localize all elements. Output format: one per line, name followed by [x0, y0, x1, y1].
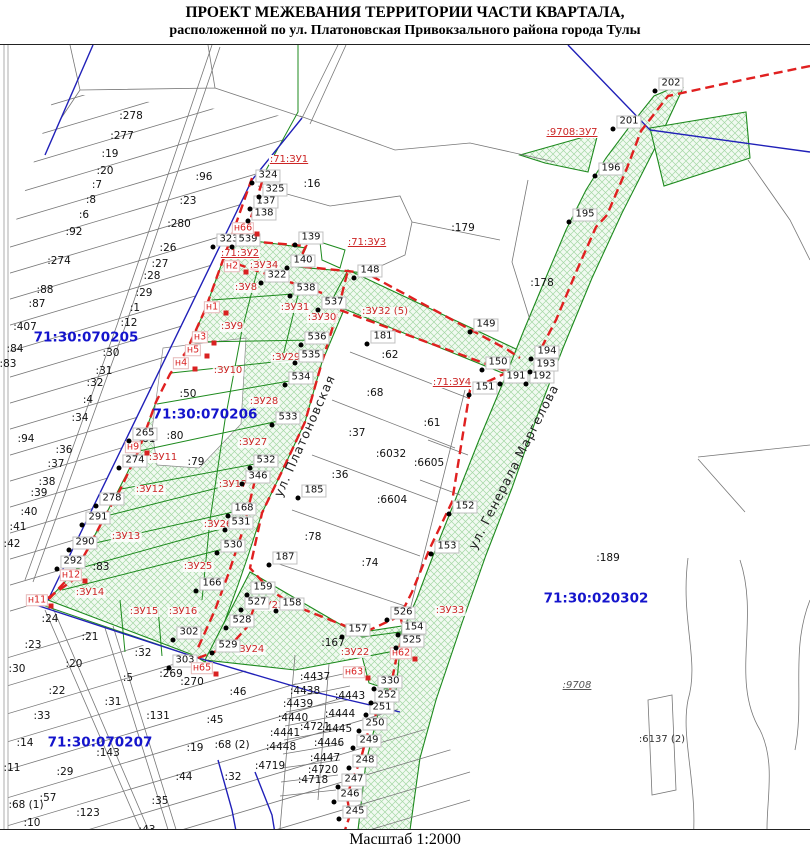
- boundary-point-dot: [127, 439, 132, 444]
- boundary-point-dot: [288, 294, 293, 299]
- new-point-dot: [413, 657, 418, 662]
- parcel-number-label: :41: [10, 522, 27, 533]
- boundary-point-dot: [211, 245, 216, 250]
- parcel-number-label: :14: [17, 738, 34, 749]
- parcel-number-label: :61: [424, 418, 441, 429]
- parcel-number-label: :7: [92, 180, 102, 191]
- parcel-number-label: :39: [31, 488, 48, 499]
- boundary-point-dot: [285, 266, 290, 271]
- zu-parcel-label: :ЗУ22: [340, 648, 371, 658]
- street-name-label: ул. Генерала Маргелова: [467, 383, 561, 552]
- boundary-point-label: 245: [342, 806, 367, 819]
- boundary-point-label: 153: [434, 541, 459, 554]
- parcel-number-label: :189: [596, 553, 620, 564]
- boundary-point-dot: [246, 219, 251, 224]
- boundary-point-label: 140: [290, 255, 315, 268]
- boundary-point-dot: [337, 817, 342, 822]
- parcel-number-label: :24: [42, 614, 59, 625]
- parcel-number-label: :26: [160, 243, 177, 254]
- parcel-number-label: :94: [18, 434, 35, 445]
- parcel-number-label: :30: [103, 348, 120, 359]
- cadastral-plan-page: :278:277:19:20:7:8:6:92:274:88:87:407:84…: [0, 0, 810, 852]
- parcel-number-label: :4437: [300, 672, 330, 683]
- boundary-point-dot: [248, 466, 253, 471]
- zu-parcel-label: :ЗУ11: [148, 453, 179, 463]
- boundary-point-dot: [94, 504, 99, 509]
- parcel-number-label: :80: [167, 431, 184, 442]
- parcel-number-label: :23: [25, 640, 42, 651]
- boundary-point-dot: [447, 512, 452, 517]
- parcel-number-label: :278: [119, 111, 143, 122]
- new-point-label: н11: [26, 594, 48, 606]
- parcel-number-label: :40: [21, 507, 38, 518]
- boundary-point-label: 249: [356, 735, 381, 748]
- parcel-number-label: :74: [362, 558, 379, 569]
- parcel-number-label: :68 (1): [8, 800, 43, 811]
- parcel-number-label: :29: [57, 767, 74, 778]
- parcel-number-label: :38: [39, 477, 56, 488]
- new-point-dot: [193, 367, 198, 372]
- boundary-point-dot: [215, 551, 220, 556]
- boundary-point-dot: [230, 245, 235, 250]
- parcel-number-label: :32: [87, 378, 104, 389]
- boundary-point-label: 534: [288, 372, 313, 385]
- parcel-number-label: :4446: [314, 738, 344, 749]
- boundary-point-dot: [498, 382, 503, 387]
- parcel-number-label: :16: [304, 179, 321, 190]
- parcel-number-label: :96: [196, 172, 213, 183]
- boundary-point-dot: [274, 609, 279, 614]
- zu-parcel-label: :ЗУ12: [135, 485, 166, 495]
- new-point-label: н2: [224, 260, 240, 272]
- parcel-number-label: :179: [451, 223, 475, 234]
- parcel-number-label: :4444: [325, 709, 355, 720]
- boundary-point-dot: [210, 651, 215, 656]
- parcel-number-label: :6604: [377, 495, 407, 506]
- boundary-point-dot: [67, 548, 72, 553]
- zu-parcel-label: :ЗУ10: [213, 366, 244, 376]
- parcel-number-label: :19: [102, 149, 119, 160]
- boundary-point-dot: [480, 368, 485, 373]
- quarter-number-label: 71:30:070206: [153, 408, 258, 422]
- new-point-label: н3: [192, 331, 208, 343]
- zu-parcel-label: :ЗУ9: [220, 322, 244, 332]
- parcel-number-label: :8: [86, 195, 96, 206]
- boundary-point-label: 150: [485, 357, 510, 370]
- boundary-point-label: 154: [401, 622, 426, 635]
- zu-parcel-label: :9708:ЗУ7: [545, 128, 598, 138]
- boundary-point-label: 532: [253, 455, 278, 468]
- parcel-number-label: :36: [332, 470, 349, 481]
- boundary-point-dot: [270, 423, 275, 428]
- parcel-number-label: :277: [110, 131, 134, 142]
- boundary-point-label: 152: [452, 501, 477, 514]
- parcel-number-label: :78: [305, 532, 322, 543]
- new-point-label: н1: [204, 301, 220, 313]
- boundary-point-dot: [299, 343, 304, 348]
- boundary-point-dot: [611, 127, 616, 132]
- boundary-point-label: 247: [341, 774, 366, 787]
- boundary-point-dot: [239, 608, 244, 613]
- parcel-number-label: :4447: [310, 753, 340, 764]
- boundary-point-label: 248: [352, 755, 377, 768]
- parcel-number-label: :46: [230, 687, 247, 698]
- parcel-number-label: :62: [382, 350, 399, 361]
- new-point-dot: [214, 672, 219, 677]
- quarter-number-label: 71:30:020302: [544, 592, 649, 606]
- parcel-number-label: :6605: [414, 458, 444, 469]
- boundary-point-label: 526: [390, 607, 415, 620]
- parcel-number-label: :4443: [335, 691, 365, 702]
- boundary-point-dot: [316, 308, 321, 313]
- quarter-number-label: 71:30:070205: [34, 331, 139, 345]
- boundary-point-dot: [340, 635, 345, 640]
- boundary-point-dot: [567, 220, 572, 225]
- boundary-point-label: 274: [122, 455, 147, 468]
- boundary-point-dot: [429, 552, 434, 557]
- boundary-point-dot: [171, 638, 176, 643]
- parcel-number-label: :32: [135, 648, 152, 659]
- parcel-number-label: :30: [9, 664, 26, 675]
- new-point-dot: [212, 341, 217, 346]
- boundary-point-dot: [396, 633, 401, 638]
- parcel-number-label: :29: [136, 288, 153, 299]
- parcel-number-label: :20: [66, 659, 83, 670]
- special-parcel-label: :6137 (2): [639, 735, 685, 745]
- parcel-number-label: :50: [180, 389, 197, 400]
- parcel-number-label: :83: [0, 359, 16, 370]
- boundary-point-dot: [259, 281, 264, 286]
- map-label-layer: :278:277:19:20:7:8:6:92:274:88:87:407:84…: [0, 0, 810, 852]
- parcel-number-label: :5: [123, 673, 133, 684]
- zu-parcel-label: :ЗУ32 (5): [361, 307, 409, 317]
- boundary-point-label: 292: [60, 556, 85, 569]
- parcel-number-label: :22: [49, 686, 66, 697]
- boundary-point-label: 181: [370, 331, 395, 344]
- boundary-point-dot: [55, 567, 60, 572]
- parcel-number-label: :44: [176, 772, 193, 783]
- boundary-point-dot: [332, 800, 337, 805]
- plan-title-line1: ПРОЕКТ МЕЖЕВАНИЯ ТЕРРИТОРИИ ЧАСТИ КВАРТА…: [0, 4, 810, 22]
- parcel-number-label: :4441: [270, 728, 300, 739]
- boundary-point-label: 538: [293, 283, 318, 296]
- boundary-point-label: 322: [264, 270, 289, 283]
- boundary-point-dot: [117, 466, 122, 471]
- boundary-point-label: 151: [472, 382, 497, 395]
- parcel-number-label: :79: [188, 457, 205, 468]
- new-point-dot: [224, 311, 229, 316]
- parcel-number-label: :83: [93, 562, 110, 573]
- boundary-point-dot: [257, 195, 262, 200]
- boundary-point-label: 194: [534, 346, 559, 359]
- boundary-point-label: 324: [255, 170, 280, 183]
- boundary-point-label: 530: [220, 540, 245, 553]
- scale-label: Масштаб 1:2000: [0, 831, 810, 849]
- boundary-point-label: 535: [298, 350, 323, 363]
- parcel-number-label: :4439: [283, 699, 313, 710]
- parcel-number-label: :1: [130, 303, 140, 314]
- zu-parcel-label: :71:ЗУ1: [269, 155, 309, 165]
- boundary-point-dot: [194, 589, 199, 594]
- boundary-point-dot: [267, 563, 272, 568]
- boundary-point-dot: [226, 514, 231, 519]
- parcel-number-label: :42: [4, 539, 21, 550]
- boundary-point-label: 187: [272, 552, 297, 565]
- boundary-point-dot: [467, 393, 472, 398]
- zu-parcel-label: :71:ЗУ2: [220, 249, 260, 259]
- zu-parcel-label: :ЗУ8: [234, 283, 258, 293]
- boundary-point-dot: [364, 713, 369, 718]
- boundary-point-label: 149: [473, 319, 498, 332]
- parcel-number-label: :33: [34, 711, 51, 722]
- parcel-number-label: :4: [83, 395, 93, 406]
- parcel-number-label: :11: [4, 763, 21, 774]
- parcel-number-label: :27: [152, 259, 169, 270]
- parcel-number-label: :4719: [255, 761, 285, 772]
- boundary-point-label: 157: [345, 624, 370, 637]
- parcel-number-label: :123: [76, 808, 100, 819]
- boundary-point-label: 250: [362, 718, 387, 731]
- boundary-point-label: 201: [616, 116, 641, 129]
- zu-parcel-label: :ЗУ13: [111, 532, 142, 542]
- parcel-number-label: :280: [167, 219, 191, 230]
- boundary-point-dot: [296, 496, 301, 501]
- boundary-point-label: 278: [99, 493, 124, 506]
- boundary-point-dot: [528, 370, 533, 375]
- boundary-point-dot: [240, 482, 245, 487]
- boundary-point-dot: [357, 729, 362, 734]
- parcel-number-label: :19: [187, 743, 204, 754]
- zu-parcel-label: :ЗУ30: [307, 313, 338, 323]
- boundary-point-dot: [365, 342, 370, 347]
- boundary-point-label: 346: [245, 471, 270, 484]
- boundary-point-dot: [394, 646, 399, 651]
- boundary-point-dot: [653, 89, 658, 94]
- parcel-number-label: :178: [530, 278, 554, 289]
- boundary-point-label: 158: [279, 598, 304, 611]
- new-point-dot: [244, 270, 249, 275]
- new-point-label: н66: [232, 222, 254, 234]
- parcel-number-label: :4438: [290, 686, 320, 697]
- boundary-point-dot: [593, 174, 598, 179]
- boundary-point-label: 330: [377, 676, 402, 689]
- parcel-number-label: :92: [66, 227, 83, 238]
- boundary-point-dot: [347, 766, 352, 771]
- boundary-point-label: 536: [304, 332, 329, 345]
- zu-parcel-label: :ЗУ15: [129, 607, 160, 617]
- boundary-point-label: 196: [598, 163, 623, 176]
- parcel-number-label: :35: [152, 796, 169, 807]
- zu-parcel-label: :71:ЗУ3: [347, 238, 387, 248]
- boundary-point-dot: [524, 382, 529, 387]
- boundary-point-dot: [351, 746, 356, 751]
- boundary-point-label: 528: [229, 615, 254, 628]
- boundary-point-label: 202: [658, 78, 683, 91]
- boundary-point-label: 195: [572, 209, 597, 222]
- new-point-dot: [49, 604, 54, 609]
- boundary-point-dot: [248, 207, 253, 212]
- new-point-dot: [366, 676, 371, 681]
- parcel-number-label: :4448: [266, 742, 296, 753]
- boundary-point-dot: [80, 523, 85, 528]
- parcel-number-label: :10: [24, 818, 41, 829]
- boundary-point-dot: [167, 666, 172, 671]
- parcel-number-label: :36: [56, 445, 73, 456]
- new-point-dot: [255, 232, 260, 237]
- parcel-number-label: :84: [7, 344, 24, 355]
- special-parcel-label: :9708: [563, 681, 592, 691]
- zu-parcel-label: :ЗУ31: [280, 303, 311, 313]
- parcel-number-label: :21: [82, 632, 99, 643]
- boundary-point-dot: [293, 243, 298, 248]
- title-block: ПРОЕКТ МЕЖЕВАНИЯ ТЕРРИТОРИИ ЧАСТИ КВАРТА…: [0, 0, 810, 45]
- parcel-number-label: :4718: [298, 775, 328, 786]
- parcel-number-label: :45: [207, 715, 224, 726]
- parcel-number-label: :31: [96, 366, 113, 377]
- new-point-dot: [205, 354, 210, 359]
- boundary-point-label: 168: [231, 503, 256, 516]
- parcel-number-label: :68: [367, 388, 384, 399]
- parcel-number-label: :270: [180, 677, 204, 688]
- new-point-label: н4: [173, 357, 189, 369]
- boundary-point-label: 185: [301, 485, 326, 498]
- parcel-number-label: :37: [48, 459, 65, 470]
- boundary-point-dot: [224, 626, 229, 631]
- boundary-point-label: 166: [199, 578, 224, 591]
- parcel-number-label: :68 (2): [214, 740, 249, 751]
- parcel-number-label: :34: [72, 413, 89, 424]
- boundary-point-label: 159: [250, 582, 275, 595]
- parcel-number-label: :87: [29, 299, 46, 310]
- boundary-point-dot: [385, 618, 390, 623]
- quarter-number-label: 71:30:070207: [48, 736, 153, 750]
- parcel-number-label: :4445: [322, 724, 352, 735]
- parcel-number-label: :6032: [376, 449, 406, 460]
- boundary-point-dot: [369, 701, 374, 706]
- parcel-number-label: :88: [37, 285, 54, 296]
- boundary-point-dot: [293, 361, 298, 366]
- zu-parcel-label: :71:ЗУ4: [432, 378, 472, 388]
- boundary-point-dot: [352, 276, 357, 281]
- scale-block: Масштаб 1:2000: [0, 829, 810, 852]
- zu-parcel-label: :ЗУ27: [238, 438, 269, 448]
- boundary-point-dot: [372, 687, 377, 692]
- boundary-point-label: 265: [132, 428, 157, 441]
- boundary-point-label: 138: [251, 208, 276, 221]
- boundary-point-label: 525: [399, 635, 424, 648]
- boundary-point-label: 302: [176, 627, 201, 640]
- parcel-number-label: :31: [105, 697, 122, 708]
- boundary-point-dot: [336, 785, 341, 790]
- parcel-number-label: :37: [349, 428, 366, 439]
- boundary-point-label: 192: [529, 371, 554, 384]
- boundary-point-dot: [283, 383, 288, 388]
- boundary-point-dot: [468, 330, 473, 335]
- parcel-number-label: :32: [225, 772, 242, 783]
- boundary-point-dot: [529, 357, 534, 362]
- parcel-number-label: :131: [146, 711, 170, 722]
- boundary-point-dot: [250, 181, 255, 186]
- parcel-number-label: :12: [121, 318, 138, 329]
- boundary-point-label: 148: [357, 265, 382, 278]
- boundary-point-label: 139: [298, 232, 323, 245]
- boundary-point-label: 527: [244, 597, 269, 610]
- zu-parcel-label: :ЗУ16: [168, 607, 199, 617]
- boundary-point-label: 537: [321, 297, 346, 310]
- new-point-label: н5: [185, 344, 201, 356]
- boundary-point-label: 531: [228, 517, 253, 530]
- new-point-label: н12: [60, 569, 82, 581]
- boundary-point-dot: [223, 528, 228, 533]
- parcel-number-label: :20: [97, 166, 114, 177]
- new-point-label: н65: [191, 662, 213, 674]
- new-point-label: н63: [343, 666, 365, 678]
- parcel-number-label: :28: [144, 271, 161, 282]
- zu-parcel-label: :ЗУ25: [183, 562, 214, 572]
- plan-title-line2: расположенной по ул. Платоновская Привок…: [0, 23, 810, 39]
- boundary-point-label: 533: [275, 412, 300, 425]
- new-point-dot: [145, 451, 150, 456]
- zu-parcel-label: :ЗУ33: [435, 606, 466, 616]
- zu-parcel-label: :ЗУ14: [75, 588, 106, 598]
- parcel-number-label: :23: [180, 196, 197, 207]
- boundary-point-label: 290: [72, 537, 97, 550]
- boundary-point-label: 529: [215, 640, 240, 653]
- boundary-point-dot: [245, 593, 250, 598]
- boundary-point-label: 291: [85, 512, 110, 525]
- parcel-number-label: :274: [47, 256, 71, 267]
- new-point-dot: [83, 579, 88, 584]
- parcel-number-label: :6: [79, 210, 89, 221]
- street-name-label: ул. Платоновская: [272, 373, 337, 499]
- boundary-point-label: 246: [337, 789, 362, 802]
